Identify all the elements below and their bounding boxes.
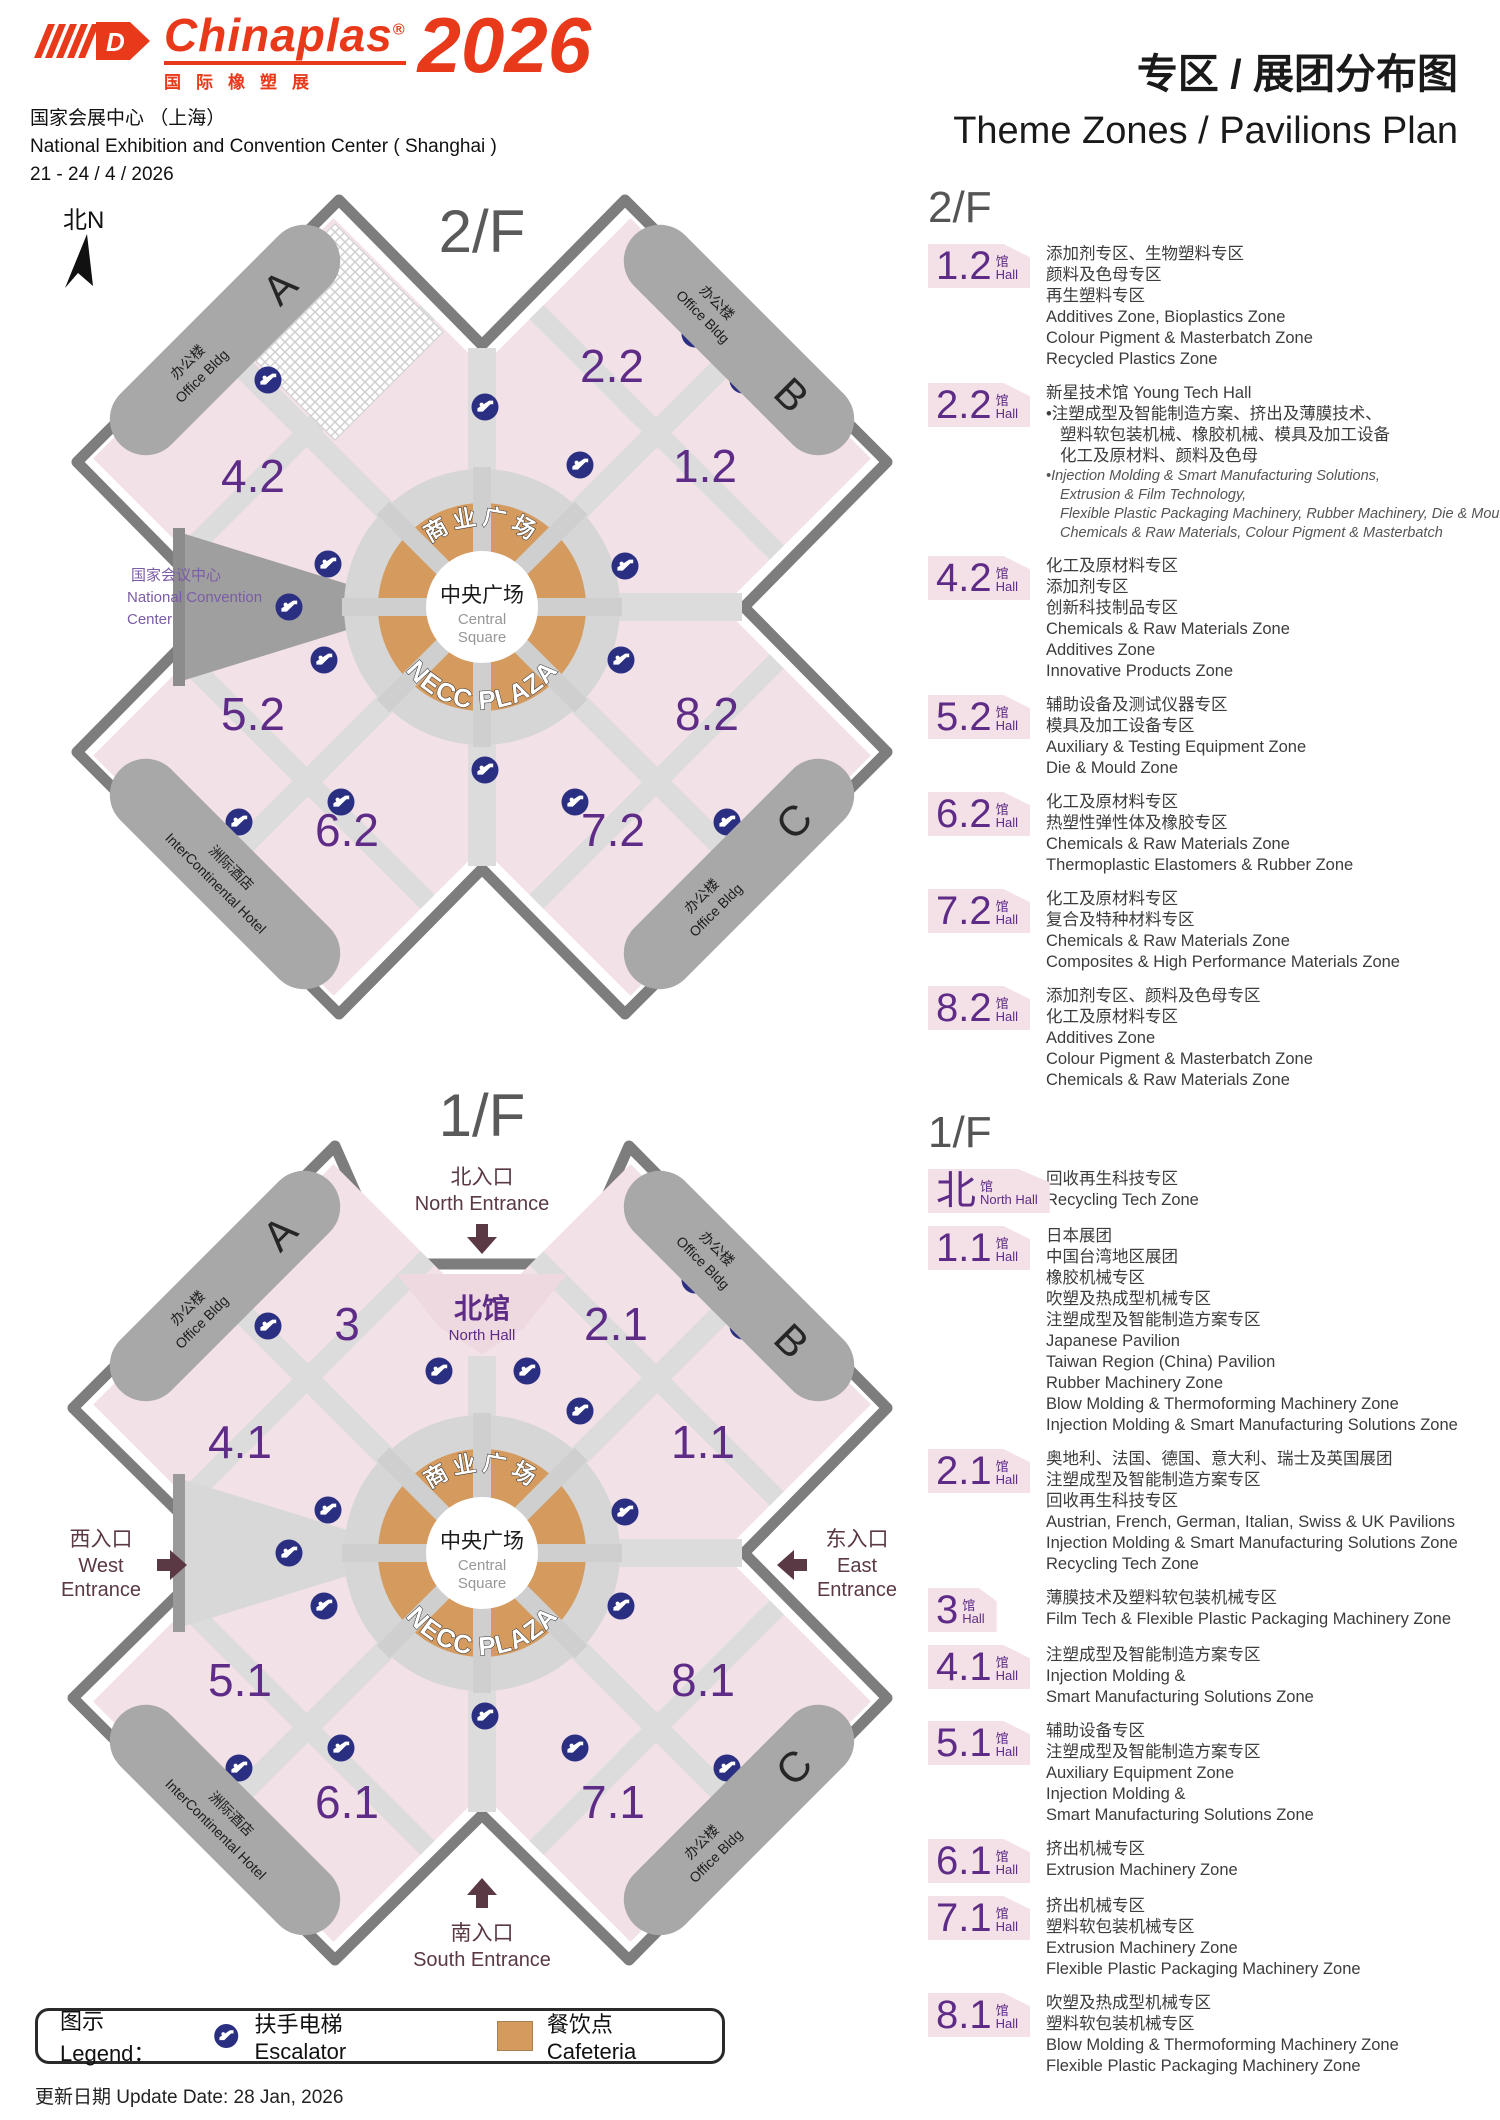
- escalator-icon: [608, 647, 635, 674]
- escalator-icon: [255, 367, 282, 394]
- hall-entry: 1.1馆Hall日本展团中国台湾地区展团橡胶机械专区吹塑及热成型机械专区注塑成型…: [928, 1226, 1498, 1436]
- hall-badge-unit-cn: 馆: [996, 394, 1018, 408]
- hall-badge: 北馆North Hall: [928, 1169, 1036, 1213]
- hall-badge-number: 4.2: [936, 559, 992, 597]
- zone-line: Auxiliary & Testing Equipment Zone: [1046, 737, 1498, 758]
- hall-badge-number: 2.1: [936, 1452, 992, 1490]
- escalator-icon: [562, 1735, 589, 1762]
- zone-line: Japanese Pavilion: [1046, 1331, 1498, 1352]
- east-entrance-en1: East: [837, 1555, 877, 1577]
- hall-badge-unit-en: Hall: [996, 1920, 1018, 1934]
- zone-line: 塑料软包装机械专区: [1046, 1917, 1498, 1938]
- hall-badge: 5.1馆Hall: [928, 1721, 1036, 1826]
- hall-badge: 4.1馆Hall: [928, 1645, 1036, 1708]
- hall-badge-unit-en: Hall: [996, 1745, 1018, 1759]
- zone-line: 注塑成型及智能制造方案专区: [1046, 1742, 1498, 1763]
- floor2-map: 国家会议中心 National Convention Center 商业广场 N…: [35, 182, 915, 1082]
- update-date: 更新日期 Update Date: 28 Jan, 2026: [35, 2082, 343, 2109]
- hall-badge-unit-en: Hall: [996, 1250, 1018, 1264]
- hall-badge-number: 2.2: [936, 386, 992, 424]
- zone-line: Injection Molding & Smart Manufacturing …: [1046, 467, 1500, 486]
- zone-line: 化工及原材料、颜料及色母: [1046, 446, 1500, 467]
- zone-lines: 添加剂专区、生物塑料专区颜料及色母专区再生塑料专区Additives Zone,…: [1046, 244, 1498, 370]
- zone-line: 添加剂专区、颜料及色母专区: [1046, 986, 1498, 1007]
- zone-line: 日本展团: [1046, 1226, 1498, 1247]
- zone-lines: 注塑成型及智能制造方案专区Injection Molding &Smart Ma…: [1046, 1645, 1498, 1708]
- hall-badge: 7.2馆Hall: [928, 889, 1036, 973]
- escalator-icon: [472, 757, 499, 784]
- zone-line: Chemicals & Raw Materials Zone: [1046, 1070, 1498, 1091]
- central-square-en2: Square: [458, 629, 506, 646]
- zone-line: Austrian, French, German, Italian, Swiss…: [1046, 1512, 1498, 1533]
- hall-badge-number: 8.1: [936, 1996, 992, 2034]
- escalator-icon: [472, 1703, 499, 1730]
- zone-lines: 添加剂专区、颜料及色母专区化工及原材料专区Additives ZoneColou…: [1046, 986, 1498, 1091]
- zone-line: Injection Molding & Smart Manufacturing …: [1046, 1533, 1498, 1554]
- hall-entry: 8.2馆Hall添加剂专区、颜料及色母专区化工及原材料专区Additives Z…: [928, 986, 1498, 1091]
- zone-line: Die & Mould Zone: [1046, 758, 1498, 779]
- zone-line: Smart Manufacturing Solutions Zone: [1046, 1805, 1498, 1826]
- convention-center-bar: [173, 528, 185, 686]
- hall-entry: 4.1馆Hall注塑成型及智能制造方案专区Injection Molding &…: [928, 1645, 1498, 1708]
- zone-lines: 日本展团中国台湾地区展团橡胶机械专区吹塑及热成型机械专区注塑成型及智能制造方案专…: [1046, 1226, 1498, 1436]
- zone-line: 化工及原材料专区: [1046, 1007, 1498, 1028]
- zone-line: Rubber Machinery Zone: [1046, 1373, 1498, 1394]
- hall-badge: 4.2馆Hall: [928, 556, 1036, 682]
- hall-entry: 6.2馆Hall化工及原材料专区热塑性弹性体及橡胶专区Chemicals & R…: [928, 792, 1498, 876]
- zone-line: 注塑成型及智能制造方案专区: [1046, 1645, 1498, 1666]
- zone-line: Film Tech & Flexible Plastic Packaging M…: [1046, 1609, 1498, 1630]
- hall-badge-unit-cn: 馆: [996, 803, 1018, 817]
- escalator-icon: [567, 1398, 594, 1425]
- zone-line: Chemicals & Raw Materials Zone: [1046, 931, 1498, 952]
- zone-line: Recycling Tech Zone: [1046, 1554, 1498, 1575]
- hall-badge-unit-en: Hall: [996, 268, 1018, 282]
- hall-badge-number: 5.2: [936, 698, 992, 736]
- escalator-icon: [311, 1593, 338, 1620]
- south-entrance-arrow-icon: [467, 1878, 497, 1908]
- east-entrance-cn: 东入口: [826, 1528, 889, 1551]
- zone-line: 化工及原材料专区: [1046, 556, 1498, 577]
- hall-badge-unit-cn: 馆: [996, 2004, 1018, 2018]
- zone-line: Blow Molding & Thermoforming Machinery Z…: [1046, 2035, 1498, 2056]
- zone-line: 化工及原材料专区: [1046, 792, 1498, 813]
- hall-entry: 2.2馆Hall新星技术馆 Young Tech Hall注塑成型及智能制造方案…: [928, 383, 1498, 543]
- hall-badge-unit-cn: 馆: [996, 1460, 1018, 1474]
- zone-line: Blow Molding & Thermoforming Machinery Z…: [1046, 1394, 1498, 1415]
- central-square-en2: Square: [458, 1575, 506, 1592]
- escalator-icon: [212, 2021, 240, 2051]
- hall-entry: 7.1馆Hall挤出机械专区塑料软包装机械专区Extrusion Machine…: [928, 1896, 1498, 1980]
- zone-line: Thermoplastic Elastomers & Rubber Zone: [1046, 855, 1498, 876]
- hall-badge-number: 4.1: [936, 1648, 992, 1686]
- hall-number: 4.2: [221, 450, 285, 502]
- west-entrance-en1: West: [78, 1555, 124, 1577]
- zone-line: Flexible Plastic Packaging Machinery, Ru…: [1046, 505, 1500, 524]
- zone-line: 挤出机械专区: [1046, 1839, 1498, 1860]
- hall-badge: 8.2馆Hall: [928, 986, 1036, 1091]
- zone-line: Chemicals & Raw Materials Zone: [1046, 619, 1498, 640]
- ncc-label-cn: 国家会议中心: [131, 567, 221, 584]
- north-hall-label-cn: 北馆: [454, 1292, 510, 1324]
- central-plaza: 商业广场 NECC PLAZA 中央广场 Central Square: [342, 1413, 622, 1693]
- hall-badge-number: 8.2: [936, 989, 992, 1027]
- registered-mark: ®: [393, 22, 406, 39]
- zone-lines: 薄膜技术及塑料软包装机械专区Film Tech & Flexible Plast…: [1046, 1588, 1498, 1632]
- east-entrance-arrow-icon: [777, 1550, 807, 1580]
- zone-lines: 辅助设备专区注塑成型及智能制造方案专区Auxiliary Equipment Z…: [1046, 1721, 1498, 1826]
- floor1-entries: 北馆North Hall回收再生科技专区Recycling Tech Zone1…: [928, 1169, 1498, 2077]
- central-square-cn: 中央广场: [440, 1530, 524, 1553]
- hall-entry: 7.2馆Hall化工及原材料专区复合及特种材料专区Chemicals & Raw…: [928, 889, 1498, 973]
- hall-badge-unit-cn: 馆: [996, 900, 1018, 914]
- hall-badge-unit-cn: 馆: [996, 1656, 1018, 1670]
- zone-line: Flexible Plastic Packaging Machinery Zon…: [1046, 1959, 1498, 1980]
- zone-line: Extrusion Machinery Zone: [1046, 1860, 1498, 1881]
- zone-line: Innovative Products Zone: [1046, 661, 1498, 682]
- legend-escalator-label: 扶手电梯 Escalator: [255, 2007, 431, 2065]
- south-entrance-en: South Entrance: [413, 1949, 551, 1971]
- floor1-map: 商业广场 NECC PLAZA 中央广场 Central Square 办公楼 …: [35, 1078, 915, 1990]
- escalator-icon: [612, 553, 639, 580]
- zone-line: 注塑成型及智能制造方案、挤出及薄膜技术、: [1046, 404, 1500, 425]
- zone-line: 颜料及色母专区: [1046, 265, 1498, 286]
- west-entrance-cn: 西入口: [70, 1528, 133, 1551]
- zone-line: 注塑成型及智能制造方案专区: [1046, 1470, 1498, 1491]
- zone-lines: 辅助设备及测试仪器专区模具及加工设备专区Auxiliary & Testing …: [1046, 695, 1498, 779]
- hall-entry: 3馆Hall薄膜技术及塑料软包装机械专区Film Tech & Flexible…: [928, 1588, 1498, 1632]
- west-entrance-en2: Entrance: [61, 1579, 141, 1601]
- legend-cafeteria-label: 餐饮点 Cafeteria: [547, 2007, 700, 2065]
- header: D Chinaplas® 国际橡塑展 2026 国家会展中心 （上海） Nati…: [30, 12, 1480, 189]
- zone-lines: 回收再生科技专区Recycling Tech Zone: [1046, 1169, 1498, 1213]
- convention-center-bar: [173, 1474, 185, 1632]
- page-title-cn: 专区 / 展团分布图: [953, 40, 1458, 100]
- hall-badge-unit-cn: 馆: [996, 706, 1018, 720]
- hall-badge-unit-cn: 馆: [996, 1237, 1018, 1251]
- chinaplas-logo-mark: D: [30, 12, 158, 70]
- zone-line: 中国台湾地区展团: [1046, 1247, 1498, 1268]
- zone-line: 吹塑及热成型机械专区: [1046, 1993, 1498, 2014]
- zone-line: 薄膜技术及塑料软包装机械专区: [1046, 1588, 1498, 1609]
- cafeteria-swatch-icon: [497, 2021, 533, 2051]
- hall-badge: 8.1馆Hall: [928, 1993, 1036, 2077]
- escalator-icon: [567, 452, 594, 479]
- east-entrance-en2: Entrance: [817, 1579, 897, 1601]
- hall-badge-unit-cn: 馆: [996, 567, 1018, 581]
- north-entrance-en: North Entrance: [415, 1193, 550, 1215]
- zone-line: 化工及原材料专区: [1046, 889, 1498, 910]
- escalator-icon: [311, 647, 338, 674]
- zone-lines: 新星技术馆 Young Tech Hall注塑成型及智能制造方案、挤出及薄膜技术…: [1046, 383, 1500, 543]
- hall-entry: 6.1馆Hall挤出机械专区Extrusion Machinery Zone: [928, 1839, 1498, 1883]
- zone-line: Additives Zone: [1046, 1028, 1498, 1049]
- central-square-cn: 中央广场: [440, 584, 524, 607]
- hall-badge-unit-en: Hall: [996, 2017, 1018, 2031]
- escalator-icon: [276, 1540, 303, 1567]
- hall-badge-unit-en: Hall: [996, 407, 1018, 421]
- hall-badge-unit-en: Hall: [996, 1010, 1018, 1024]
- escalator-icon: [514, 1358, 541, 1385]
- north-compass-icon: [65, 234, 93, 288]
- hall-badge-unit-cn: 馆: [996, 1850, 1018, 1864]
- hall-number: 1.2: [673, 440, 737, 492]
- north-entrance-arrow-icon: [467, 1224, 497, 1254]
- page-title: 专区 / 展团分布图 Theme Zones / Pavilions Plan: [953, 40, 1458, 153]
- floor1-heading: 1/F: [928, 1111, 1498, 1155]
- hall-number: 1.1: [671, 1416, 735, 1468]
- zone-lines: 挤出机械专区塑料软包装机械专区Extrusion Machinery ZoneF…: [1046, 1896, 1498, 1980]
- north-entrance-cn: 北入口: [451, 1166, 514, 1189]
- hall-badge-unit-en: North Hall: [980, 1193, 1038, 1207]
- zone-line: 橡胶机械专区: [1046, 1268, 1498, 1289]
- zone-line: Injection Molding &: [1046, 1784, 1498, 1805]
- zone-lines: 化工及原材料专区添加剂专区创新科技制品专区Chemicals & Raw Mat…: [1046, 556, 1498, 682]
- central-square-en1: Central: [458, 1557, 506, 1574]
- zone-line: 奥地利、法国、德国、意大利、瑞士及英国展团: [1046, 1449, 1498, 1470]
- hall-badge: 6.2馆Hall: [928, 792, 1036, 876]
- hall-badge: 3馆Hall: [928, 1588, 1036, 1632]
- escalator-icon: [426, 1358, 453, 1385]
- zone-lines: 挤出机械专区Extrusion Machinery Zone: [1046, 1839, 1498, 1883]
- hall-number: 7.2: [581, 804, 645, 856]
- north-compass-label: 北N: [63, 207, 104, 234]
- hall-badge: 2.2馆Hall: [928, 383, 1036, 543]
- zone-lines: 吹塑及热成型机械专区塑料软包装机械专区Blow Molding & Thermo…: [1046, 1993, 1498, 2077]
- zone-line: Additives Zone, Bioplastics Zone: [1046, 307, 1498, 328]
- zone-line: Injection Molding & Smart Manufacturing …: [1046, 1415, 1498, 1436]
- brand-name-cn: 国际橡塑展: [164, 61, 406, 93]
- hall-number: 8.2: [675, 688, 739, 740]
- zone-line: 创新科技制品专区: [1046, 598, 1498, 619]
- escalator-icon: [612, 1499, 639, 1526]
- zone-line: 热塑性弹性体及橡胶专区: [1046, 813, 1498, 834]
- hall-number: 4.1: [208, 1416, 272, 1468]
- brand-name: Chinaplas®: [164, 12, 406, 58]
- escalator-icon: [276, 594, 303, 621]
- escalator-icon: [608, 1593, 635, 1620]
- zone-line: 吹塑及热成型机械专区: [1046, 1289, 1498, 1310]
- zone-line: Auxiliary Equipment Zone: [1046, 1763, 1498, 1784]
- hall-number: 5.2: [221, 688, 285, 740]
- floor2-label: 2/F: [439, 198, 526, 265]
- central-square-en1: Central: [458, 611, 506, 628]
- zone-line: Recycled Plastics Zone: [1046, 349, 1498, 370]
- hall-badge-number: 1.2: [936, 247, 992, 285]
- zone-line: Additives Zone: [1046, 640, 1498, 661]
- zone-line: 塑料软包装机械专区: [1046, 2014, 1498, 2035]
- north-hall-label-en: North Hall: [449, 1327, 516, 1344]
- poster-page: D Chinaplas® 国际橡塑展 2026 国家会展中心 （上海） Nati…: [0, 0, 1500, 2120]
- hall-badge-number: 3: [936, 1591, 958, 1629]
- hall-entry: 4.2馆Hall化工及原材料专区添加剂专区创新科技制品专区Chemicals &…: [928, 556, 1498, 682]
- hall-number: 8.1: [671, 1654, 735, 1706]
- zones-legend-column: 2/F 1.2馆Hall添加剂专区、生物塑料专区颜料及色母专区再生塑料专区Add…: [928, 186, 1498, 2090]
- hall-number: 2.2: [580, 340, 644, 392]
- hall-badge-unit-cn: 馆: [962, 1599, 984, 1613]
- hall-badge-unit-en: Hall: [996, 1863, 1018, 1877]
- hall-entry: 2.1馆Hall奥地利、法国、德国、意大利、瑞士及英国展团注塑成型及智能制造方案…: [928, 1449, 1498, 1575]
- escalator-icon: [255, 1313, 282, 1340]
- hall-number: 3: [334, 1298, 360, 1350]
- hall-badge: 2.1馆Hall: [928, 1449, 1036, 1575]
- central-plaza: 商业广场 NECC PLAZA 中央广场 Central Square: [342, 467, 622, 747]
- hall-badge-unit-en: Hall: [996, 580, 1018, 594]
- zone-line: Colour Pigment & Masterbatch Zone: [1046, 1049, 1498, 1070]
- escalator-icon: [472, 394, 499, 421]
- legend-label: 图示 Legend：: [60, 2004, 198, 2068]
- hall-number: 5.1: [208, 1654, 272, 1706]
- hall-badge-unit-en: Hall: [996, 1473, 1018, 1487]
- hall-entry: 5.1馆Hall辅助设备专区注塑成型及智能制造方案专区Auxiliary Equ…: [928, 1721, 1498, 1826]
- zone-line: Taiwan Region (China) Pavilion: [1046, 1352, 1498, 1373]
- hall-badge-unit-cn: 馆: [996, 1907, 1018, 1921]
- floor2-entries: 1.2馆Hall添加剂专区、生物塑料专区颜料及色母专区再生塑料专区Additiv…: [928, 244, 1498, 1091]
- hall-badge-number: 1.1: [936, 1229, 992, 1267]
- hall-badge: 7.1馆Hall: [928, 1896, 1036, 1980]
- zone-line: 辅助设备专区: [1046, 1721, 1498, 1742]
- zone-line: 添加剂专区、生物塑料专区: [1046, 244, 1498, 265]
- hall-badge-unit-en: Hall: [996, 719, 1018, 733]
- zone-line: Flexible Plastic Packaging Machinery Zon…: [1046, 2056, 1498, 2077]
- zone-line: Smart Manufacturing Solutions Zone: [1046, 1687, 1498, 1708]
- hall-entry: 1.2馆Hall添加剂专区、生物塑料专区颜料及色母专区再生塑料专区Additiv…: [928, 244, 1498, 370]
- hall-badge-number: 北: [936, 1172, 976, 1210]
- escalator-icon: [315, 1497, 342, 1524]
- zone-lines: 化工及原材料专区复合及特种材料专区Chemicals & Raw Materia…: [1046, 889, 1498, 973]
- zone-line: 回收再生科技专区: [1046, 1169, 1498, 1190]
- hall-badge-number: 5.1: [936, 1724, 992, 1762]
- zone-line: 注塑成型及智能制造方案专区: [1046, 1310, 1498, 1331]
- zone-line: Extrusion & Film Technology,: [1046, 486, 1500, 505]
- hall-badge-unit-en: Hall: [996, 816, 1018, 830]
- ncc-label-en2: Center: [127, 611, 172, 628]
- zone-line: Chemicals & Raw Materials Zone: [1046, 834, 1498, 855]
- zone-line: Chemicals & Raw Materials, Colour Pigmen…: [1046, 524, 1500, 543]
- hall-badge: 5.2馆Hall: [928, 695, 1036, 779]
- zone-line: Recycling Tech Zone: [1046, 1190, 1498, 1211]
- hall-badge-unit-en: Hall: [996, 1669, 1018, 1683]
- logo-d-letter: D: [106, 27, 125, 57]
- zone-line: Extrusion Machinery Zone: [1046, 1938, 1498, 1959]
- hall-badge-number: 7.1: [936, 1899, 992, 1937]
- zone-line: Injection Molding &: [1046, 1666, 1498, 1687]
- page-title-en: Theme Zones / Pavilions Plan: [953, 110, 1458, 153]
- hall-entry: 北馆North Hall回收再生科技专区Recycling Tech Zone: [928, 1169, 1498, 1213]
- zone-lines: 奥地利、法国、德国、意大利、瑞士及英国展团注塑成型及智能制造方案专区回收再生科技…: [1046, 1449, 1498, 1575]
- hall-badge: 1.2馆Hall: [928, 244, 1036, 370]
- hall-badge-number: 6.1: [936, 1842, 992, 1880]
- south-entrance-cn: 南入口: [451, 1922, 514, 1945]
- hall-badge-unit-cn: 馆: [996, 1732, 1018, 1746]
- zone-line: 添加剂专区: [1046, 577, 1498, 598]
- hall-badge-unit-en: Hall: [962, 1612, 984, 1626]
- escalator-icon: [315, 551, 342, 578]
- zone-line: 再生塑料专区: [1046, 286, 1498, 307]
- hall-badge-unit-cn: 馆: [996, 255, 1018, 269]
- zone-line: 模具及加工设备专区: [1046, 716, 1498, 737]
- hall-number: 7.1: [581, 1776, 645, 1828]
- floor2-heading: 2/F: [928, 186, 1498, 230]
- hall-entry: 8.1馆Hall吹塑及热成型机械专区塑料软包装机械专区Blow Molding …: [928, 1993, 1498, 2077]
- hall-number: 6.1: [315, 1776, 379, 1828]
- zone-line: 塑料软包装机械、橡胶机械、模具及加工设备: [1046, 425, 1500, 446]
- hall-badge: 6.1馆Hall: [928, 1839, 1036, 1883]
- zone-line: 挤出机械专区: [1046, 1896, 1498, 1917]
- zone-line: 辅助设备及测试仪器专区: [1046, 695, 1498, 716]
- zone-line: 回收再生科技专区: [1046, 1491, 1498, 1512]
- zone-line: 新星技术馆 Young Tech Hall: [1046, 383, 1500, 404]
- hall-entry: 5.2馆Hall辅助设备及测试仪器专区模具及加工设备专区Auxiliary & …: [928, 695, 1498, 779]
- hall-number: 2.1: [584, 1298, 648, 1350]
- map-key: 图示 Legend： 扶手电梯 Escalator 餐饮点 Cafeteria: [35, 2008, 725, 2064]
- zone-line: 复合及特种材料专区: [1046, 910, 1498, 931]
- zone-line: Colour Pigment & Masterbatch Zone: [1046, 328, 1498, 349]
- zone-lines: 化工及原材料专区热塑性弹性体及橡胶专区Chemicals & Raw Mater…: [1046, 792, 1498, 876]
- event-year: 2026: [418, 12, 592, 78]
- hall-badge-unit-cn: 馆: [996, 997, 1018, 1011]
- hall-badge-unit-en: Hall: [996, 913, 1018, 927]
- escalator-icon: [328, 1735, 355, 1762]
- floor1-label: 1/F: [439, 1082, 526, 1149]
- hall-badge-number: 7.2: [936, 892, 992, 930]
- hall-badge-number: 6.2: [936, 795, 992, 833]
- hall-number: 6.2: [315, 804, 379, 856]
- ncc-label-en1: National Convention: [127, 589, 262, 606]
- zone-line: Composites & High Performance Materials …: [1046, 952, 1498, 973]
- hall-badge: 1.1馆Hall: [928, 1226, 1036, 1436]
- hall-badge-unit-cn: 馆: [980, 1180, 1038, 1194]
